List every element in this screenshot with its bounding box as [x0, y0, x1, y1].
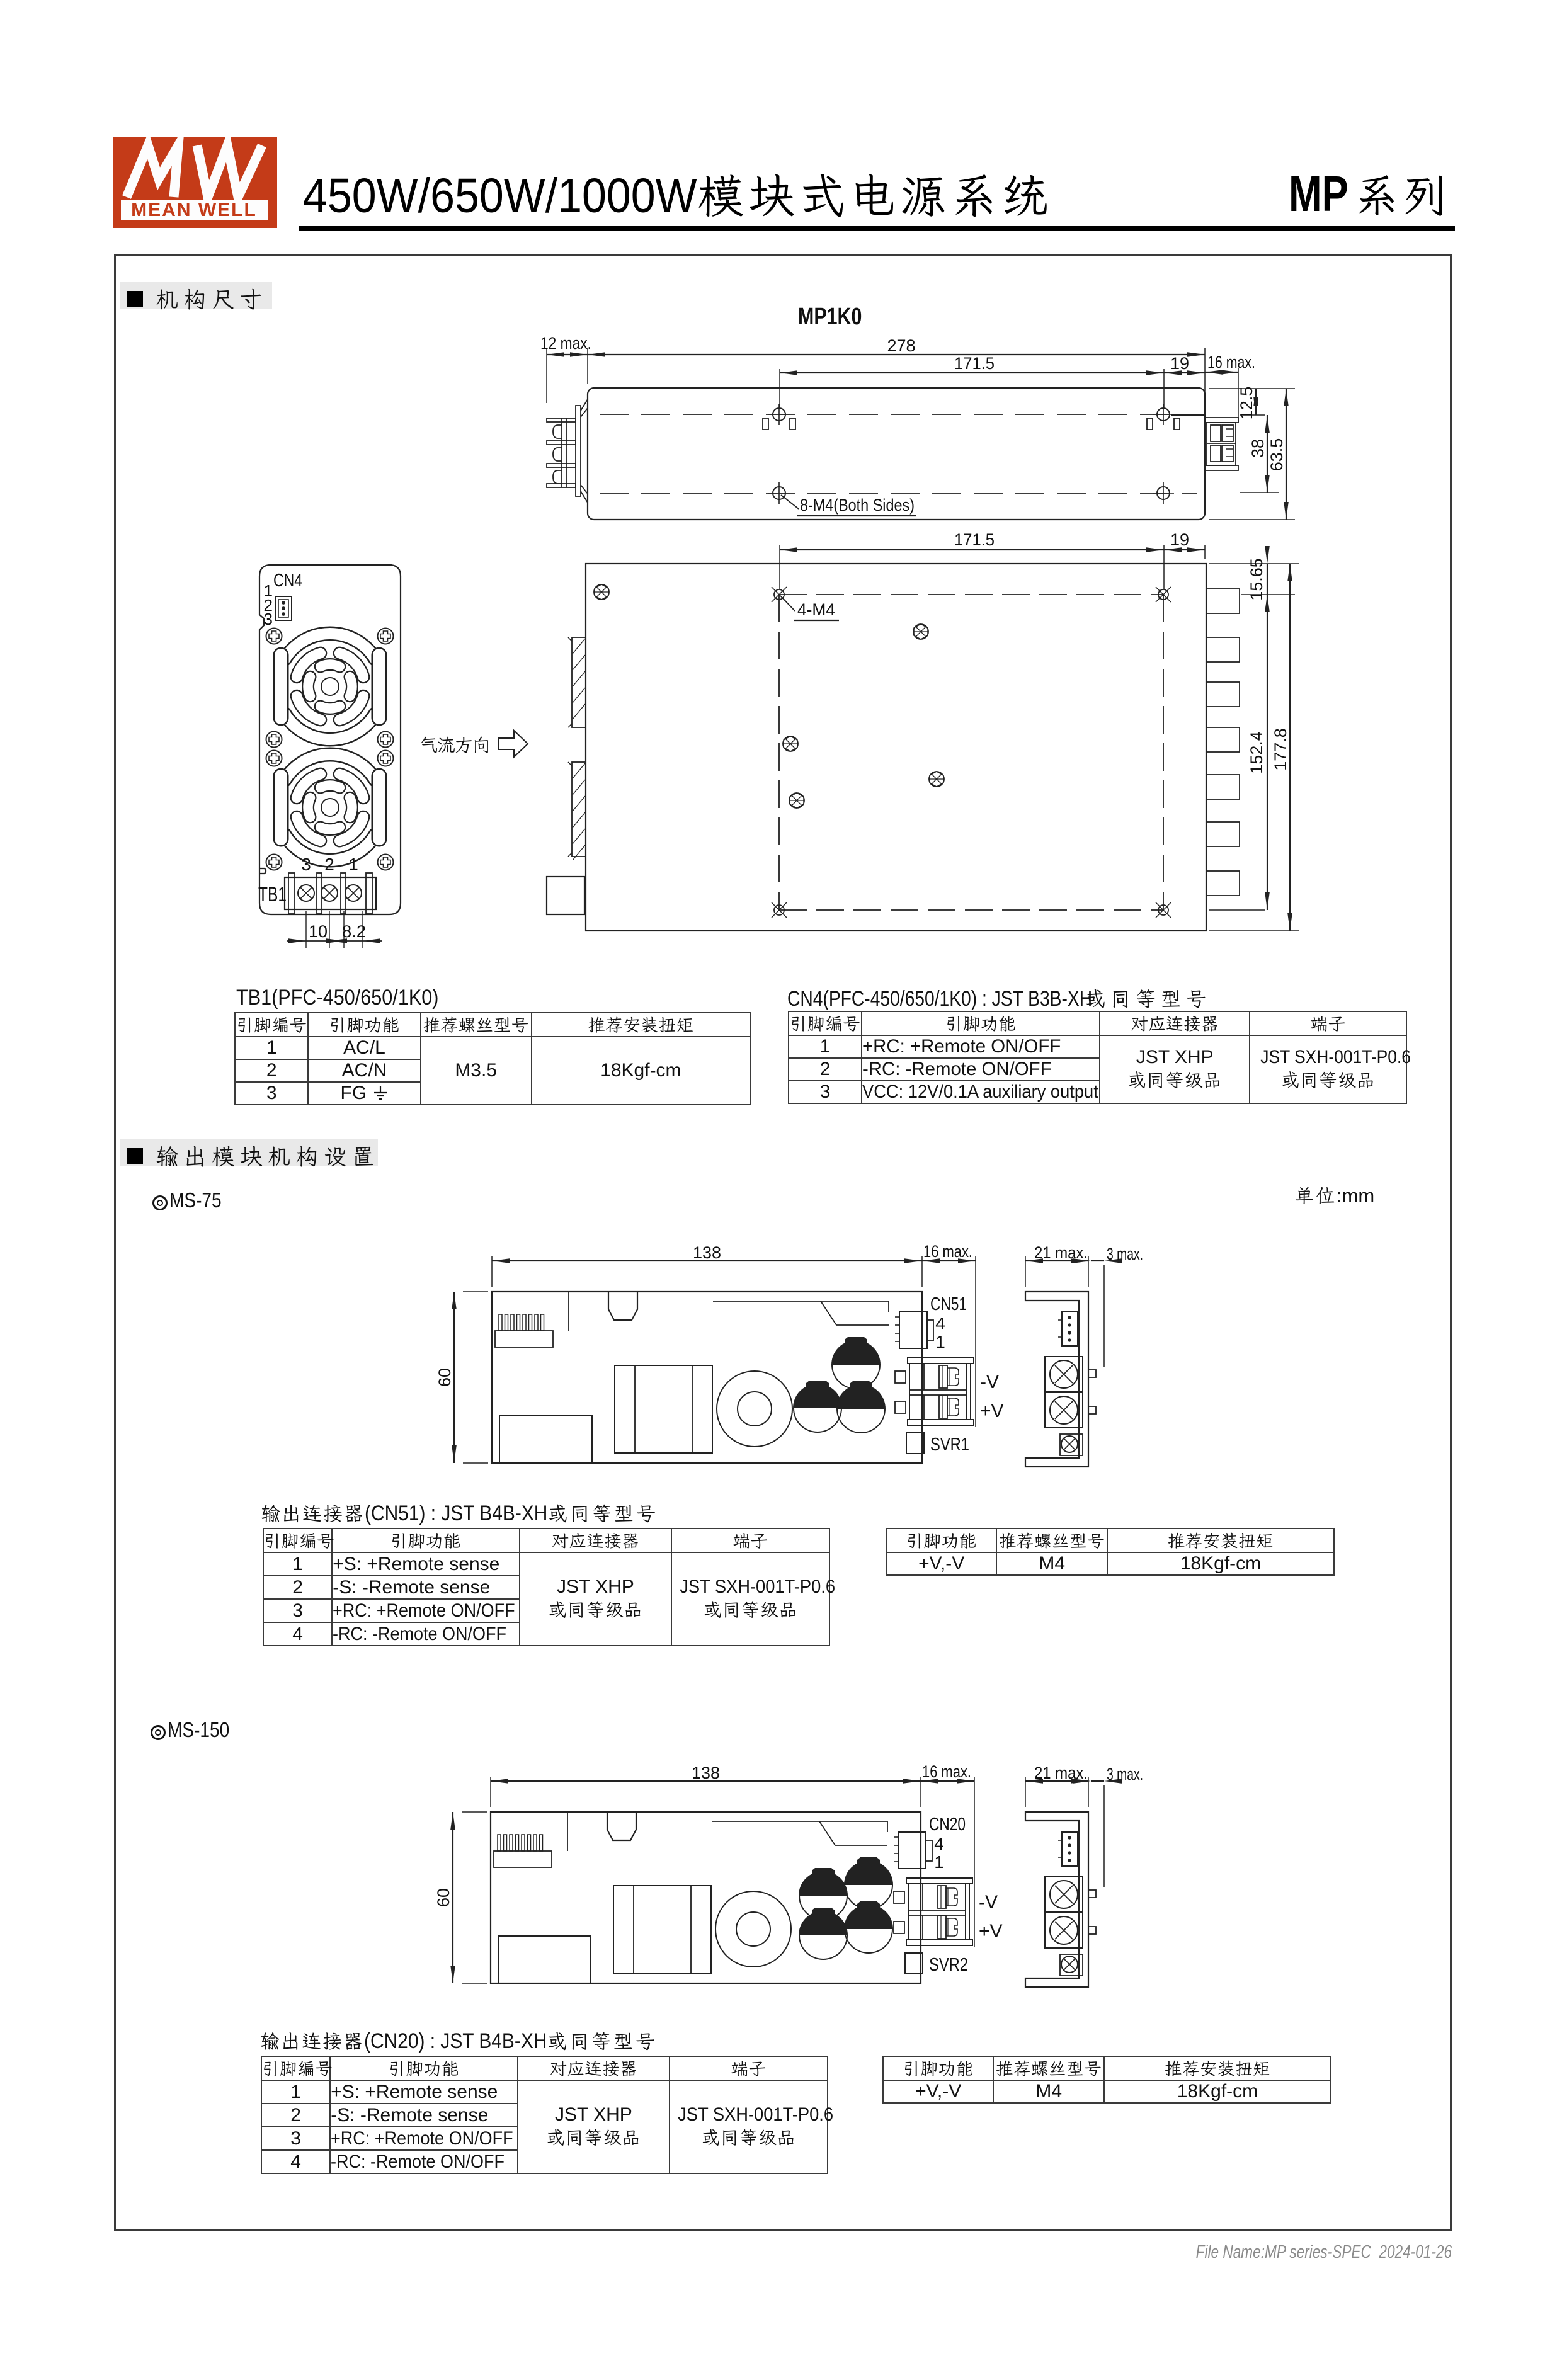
svg-text:MEAN WELL: MEAN WELL — [131, 200, 257, 220]
